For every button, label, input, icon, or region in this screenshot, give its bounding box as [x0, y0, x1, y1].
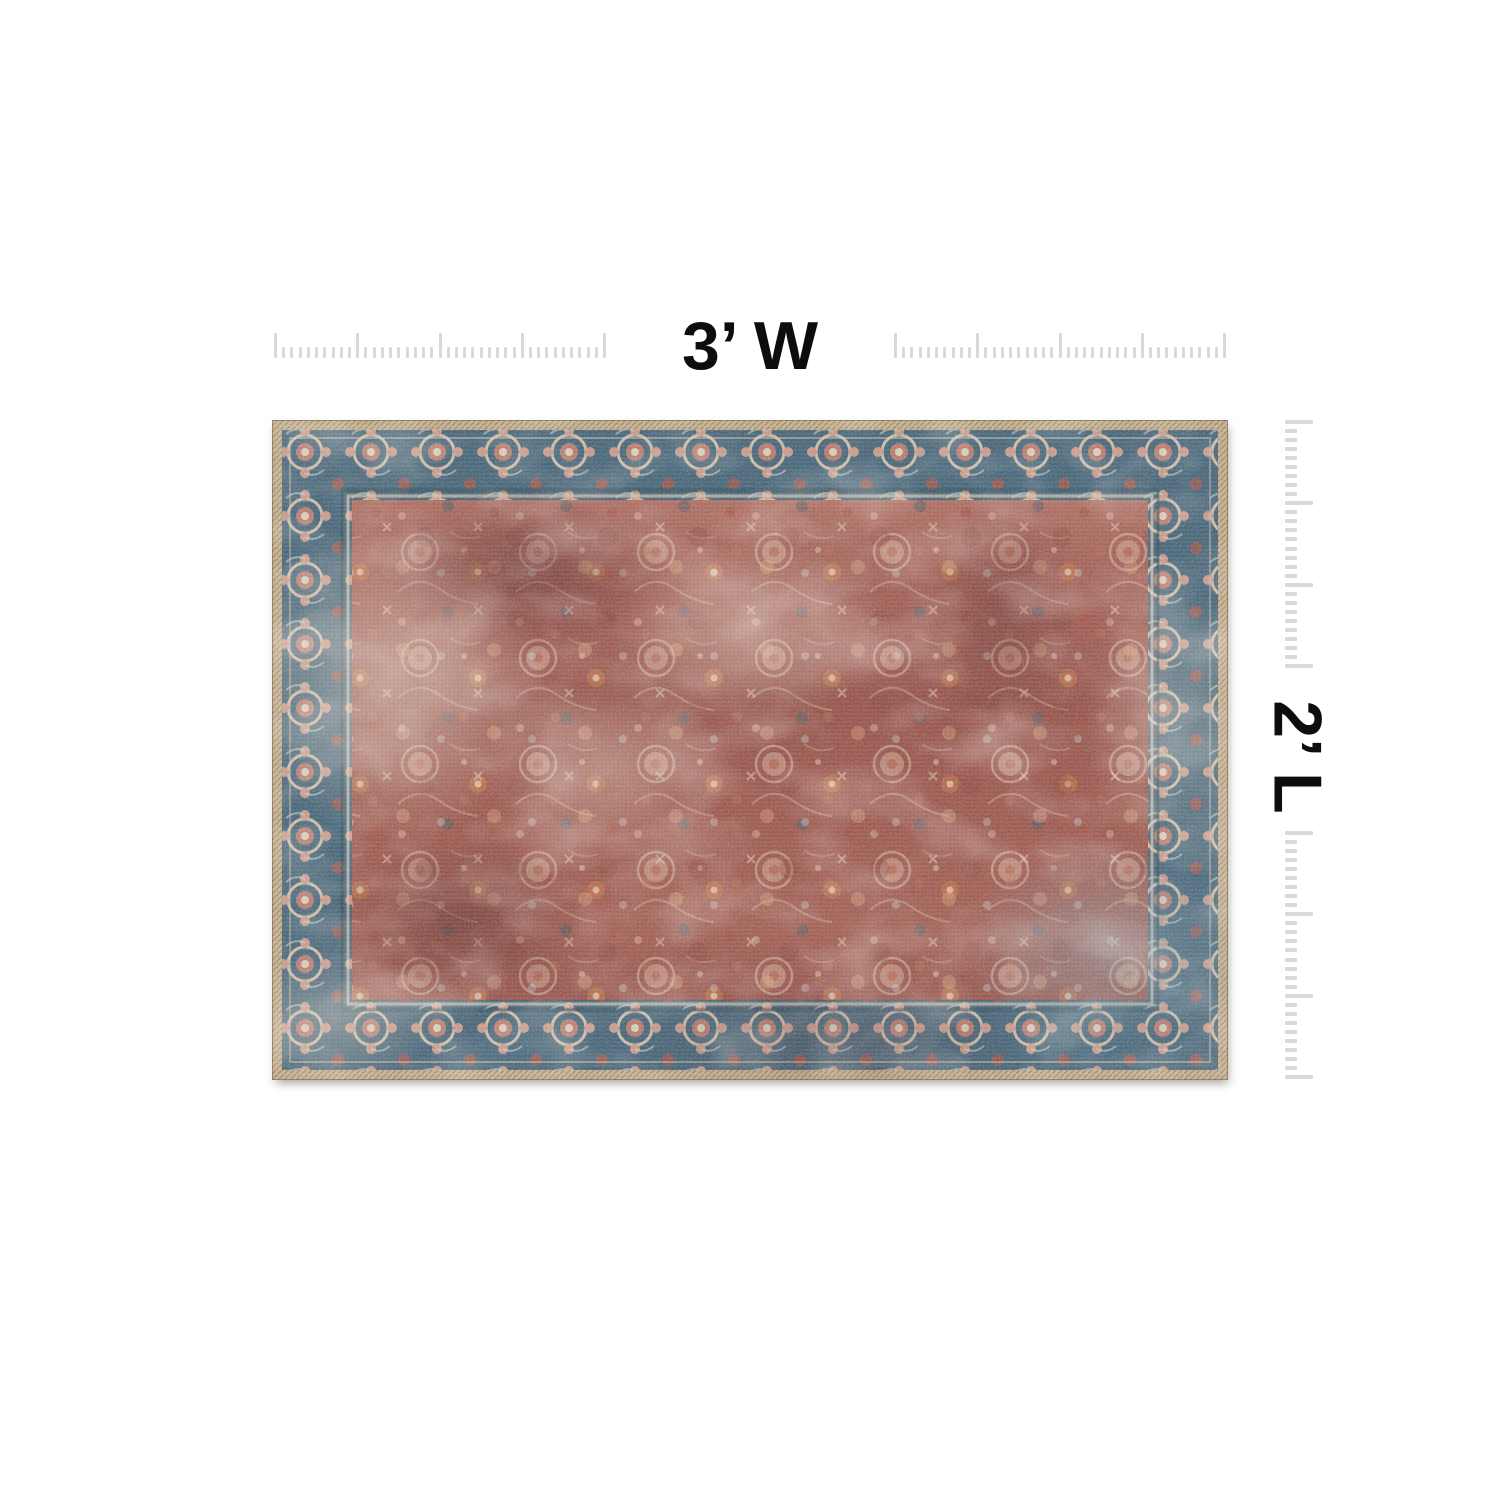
ruler-minor-tick: [480, 347, 483, 358]
ruler-minor-tick: [935, 347, 938, 358]
ruler-minor-tick: [570, 347, 573, 358]
ruler-minor-tick: [1285, 1012, 1297, 1016]
rug-artwork: [272, 420, 1228, 1080]
ruler-minor-tick: [562, 347, 565, 358]
ruler-minor-tick: [1285, 510, 1297, 514]
rug-image: [272, 420, 1228, 1080]
length-ruler-bottom-segment: [1285, 831, 1315, 1079]
ruler-minor-tick: [496, 347, 499, 358]
ruler-major-tick: [1285, 912, 1313, 916]
ruler-minor-tick: [1285, 537, 1297, 541]
ruler-major-tick: [274, 333, 277, 358]
ruler-minor-tick: [1285, 894, 1297, 898]
ruler-minor-tick: [1285, 565, 1297, 569]
ruler-major-tick: [894, 333, 897, 358]
ruler-minor-tick: [960, 347, 963, 358]
ruler-minor-tick: [1285, 1057, 1297, 1061]
ruler-minor-tick: [1285, 637, 1297, 641]
length-ruler-top-segment: [1285, 420, 1315, 668]
ruler-minor-tick: [1285, 967, 1297, 971]
width-ruler-right-segment: [894, 333, 1226, 358]
ruler-minor-tick: [554, 347, 557, 358]
ruler-minor-tick: [1042, 347, 1045, 358]
ruler-minor-tick: [1116, 347, 1119, 358]
ruler-major-tick: [1285, 994, 1313, 998]
ruler-major-tick: [521, 333, 524, 358]
ruler-minor-tick: [1285, 903, 1297, 907]
ruler-major-tick: [1285, 1075, 1313, 1079]
ruler-minor-tick: [1285, 519, 1297, 523]
ruler-minor-tick: [1100, 347, 1103, 358]
ruler-minor-tick: [1285, 885, 1297, 889]
ruler-minor-tick: [1091, 347, 1094, 358]
ruler-minor-tick: [1285, 921, 1297, 925]
ruler-minor-tick: [1285, 930, 1297, 934]
ruler-major-tick: [1285, 501, 1313, 505]
ruler-minor-tick: [1157, 347, 1160, 358]
ruler-minor-tick: [1285, 429, 1297, 433]
ruler-minor-tick: [1285, 619, 1297, 623]
ruler-minor-tick: [290, 347, 293, 358]
ruler-minor-tick: [364, 347, 367, 358]
width-ruler-left-segment: [274, 333, 606, 358]
ruler-minor-tick: [1207, 347, 1210, 358]
ruler-major-tick: [1223, 333, 1226, 358]
ruler-minor-tick: [1285, 939, 1297, 943]
ruler-minor-tick: [1285, 492, 1297, 496]
ruler-minor-tick: [1285, 1048, 1297, 1052]
ruler-minor-tick: [529, 347, 532, 358]
ruler-minor-tick: [1285, 574, 1297, 578]
ruler-minor-tick: [1285, 646, 1297, 650]
ruler-minor-tick: [1124, 347, 1127, 358]
ruler-minor-tick: [389, 347, 392, 358]
ruler-minor-tick: [1285, 985, 1297, 989]
ruler-minor-tick: [463, 347, 466, 358]
ruler-minor-tick: [1285, 628, 1297, 632]
ruler-major-tick: [1141, 333, 1144, 358]
ruler-minor-tick: [943, 347, 946, 358]
ruler-minor-tick: [578, 347, 581, 358]
ruler-minor-tick: [397, 347, 400, 358]
ruler-minor-tick: [1075, 347, 1078, 358]
ruler-major-tick: [356, 333, 359, 358]
ruler-minor-tick: [323, 347, 326, 358]
ruler-major-tick: [1285, 420, 1313, 424]
ruler-minor-tick: [1285, 592, 1297, 596]
ruler-minor-tick: [1285, 1021, 1297, 1025]
ruler-minor-tick: [927, 347, 930, 358]
ruler-minor-tick: [1285, 655, 1297, 659]
ruler-minor-tick: [1285, 528, 1297, 532]
ruler-minor-tick: [910, 347, 913, 358]
ruler-minor-tick: [348, 347, 351, 358]
ruler-minor-tick: [299, 347, 302, 358]
ruler-minor-tick: [1009, 347, 1012, 358]
length-dimension-label: 2’ L: [1259, 700, 1337, 813]
ruler-minor-tick: [1108, 347, 1111, 358]
ruler-minor-tick: [1285, 849, 1297, 853]
ruler-minor-tick: [1285, 1030, 1297, 1034]
ruler-minor-tick: [1285, 601, 1297, 605]
ruler-minor-tick: [1149, 347, 1152, 358]
ruler-minor-tick: [1285, 465, 1297, 469]
ruler-minor-tick: [1285, 556, 1297, 560]
ruler-minor-tick: [513, 347, 516, 358]
ruler-minor-tick: [1285, 547, 1297, 551]
ruler-minor-tick: [968, 347, 971, 358]
ruler-minor-tick: [447, 347, 450, 358]
product-dimension-image: 3’ W 2’ L: [0, 0, 1500, 1500]
ruler-minor-tick: [537, 347, 540, 358]
ruler-minor-tick: [1165, 347, 1168, 358]
ruler-minor-tick: [340, 347, 343, 358]
ruler-minor-tick: [1285, 840, 1297, 844]
ruler-minor-tick: [381, 347, 384, 358]
ruler-minor-tick: [1050, 347, 1053, 358]
ruler-minor-tick: [1198, 347, 1201, 358]
ruler-minor-tick: [545, 347, 548, 358]
ruler-minor-tick: [1285, 610, 1297, 614]
ruler-minor-tick: [307, 347, 310, 358]
ruler-major-tick: [1059, 333, 1062, 358]
ruler-minor-tick: [952, 347, 955, 358]
ruler-minor-tick: [430, 347, 433, 358]
ruler-minor-tick: [1285, 438, 1297, 442]
ruler-minor-tick: [1133, 347, 1136, 358]
ruler-major-tick: [1285, 664, 1313, 668]
ruler-minor-tick: [1285, 1039, 1297, 1043]
ruler-minor-tick: [1174, 347, 1177, 358]
ruler-minor-tick: [1083, 347, 1086, 358]
ruler-major-tick: [439, 333, 442, 358]
ruler-minor-tick: [1001, 347, 1004, 358]
ruler-minor-tick: [1285, 1003, 1297, 1007]
ruler-minor-tick: [1285, 1066, 1297, 1070]
ruler-minor-tick: [422, 347, 425, 358]
ruler-minor-tick: [1285, 958, 1297, 962]
ruler-minor-tick: [984, 347, 987, 358]
ruler-minor-tick: [1215, 347, 1218, 358]
length-dimension-label-wrap: 2’ L: [1238, 698, 1358, 816]
ruler-minor-tick: [919, 347, 922, 358]
ruler-minor-tick: [1017, 347, 1020, 358]
ruler-minor-tick: [488, 347, 491, 358]
ruler-minor-tick: [414, 347, 417, 358]
ruler-minor-tick: [1067, 347, 1070, 358]
ruler-minor-tick: [1182, 347, 1185, 358]
ruler-minor-tick: [332, 347, 335, 358]
ruler-major-tick: [1285, 583, 1313, 587]
ruler-minor-tick: [406, 347, 409, 358]
ruler-minor-tick: [455, 347, 458, 358]
ruler-minor-tick: [315, 347, 318, 358]
ruler-minor-tick: [1026, 347, 1029, 358]
ruler-minor-tick: [993, 347, 996, 358]
ruler-minor-tick: [902, 347, 905, 358]
ruler-minor-tick: [587, 347, 590, 358]
ruler-minor-tick: [1285, 858, 1297, 862]
ruler-minor-tick: [595, 347, 598, 358]
ruler-minor-tick: [1190, 347, 1193, 358]
ruler-minor-tick: [471, 347, 474, 358]
ruler-minor-tick: [373, 347, 376, 358]
ruler-minor-tick: [282, 347, 285, 358]
width-dimension-label: 3’ W: [606, 308, 894, 384]
ruler-minor-tick: [1285, 948, 1297, 952]
ruler-major-tick: [1285, 831, 1313, 835]
ruler-minor-tick: [1285, 456, 1297, 460]
ruler-minor-tick: [1285, 976, 1297, 980]
ruler-minor-tick: [504, 347, 507, 358]
ruler-minor-tick: [1285, 867, 1297, 871]
ruler-minor-tick: [1285, 876, 1297, 880]
ruler-minor-tick: [1285, 447, 1297, 451]
ruler-major-tick: [976, 333, 979, 358]
ruler-minor-tick: [1034, 347, 1037, 358]
ruler-minor-tick: [1285, 483, 1297, 487]
ruler-minor-tick: [1285, 474, 1297, 478]
